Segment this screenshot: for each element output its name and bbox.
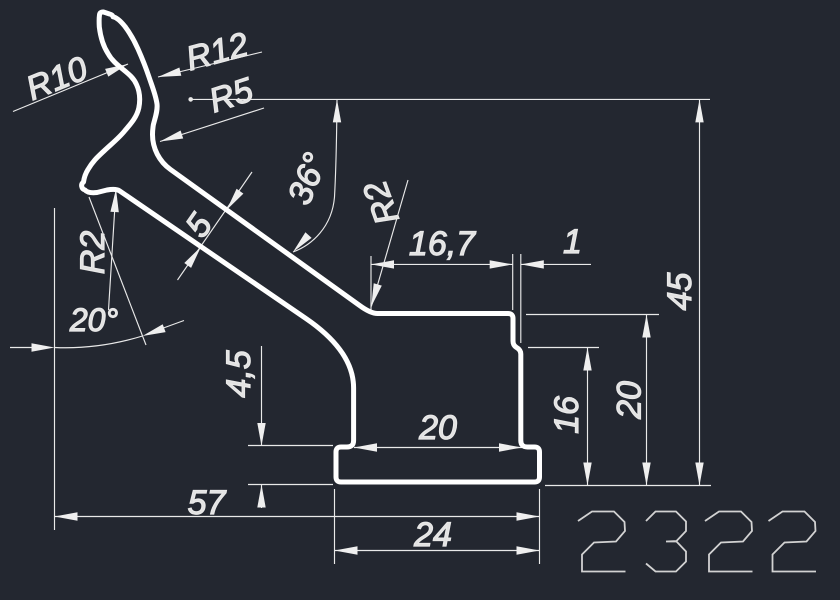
- svg-text:4,5: 4,5: [220, 350, 258, 397]
- svg-text:45: 45: [661, 273, 699, 311]
- svg-text:R2: R2: [74, 231, 112, 275]
- svg-text:57: 57: [188, 484, 227, 522]
- svg-text:16: 16: [548, 396, 586, 434]
- svg-text:1: 1: [563, 223, 582, 261]
- svg-text:16,7: 16,7: [409, 225, 476, 263]
- svg-text:20: 20: [418, 409, 457, 447]
- svg-text:24: 24: [413, 516, 452, 554]
- svg-text:20: 20: [611, 381, 649, 420]
- svg-text:20°: 20°: [69, 302, 119, 338]
